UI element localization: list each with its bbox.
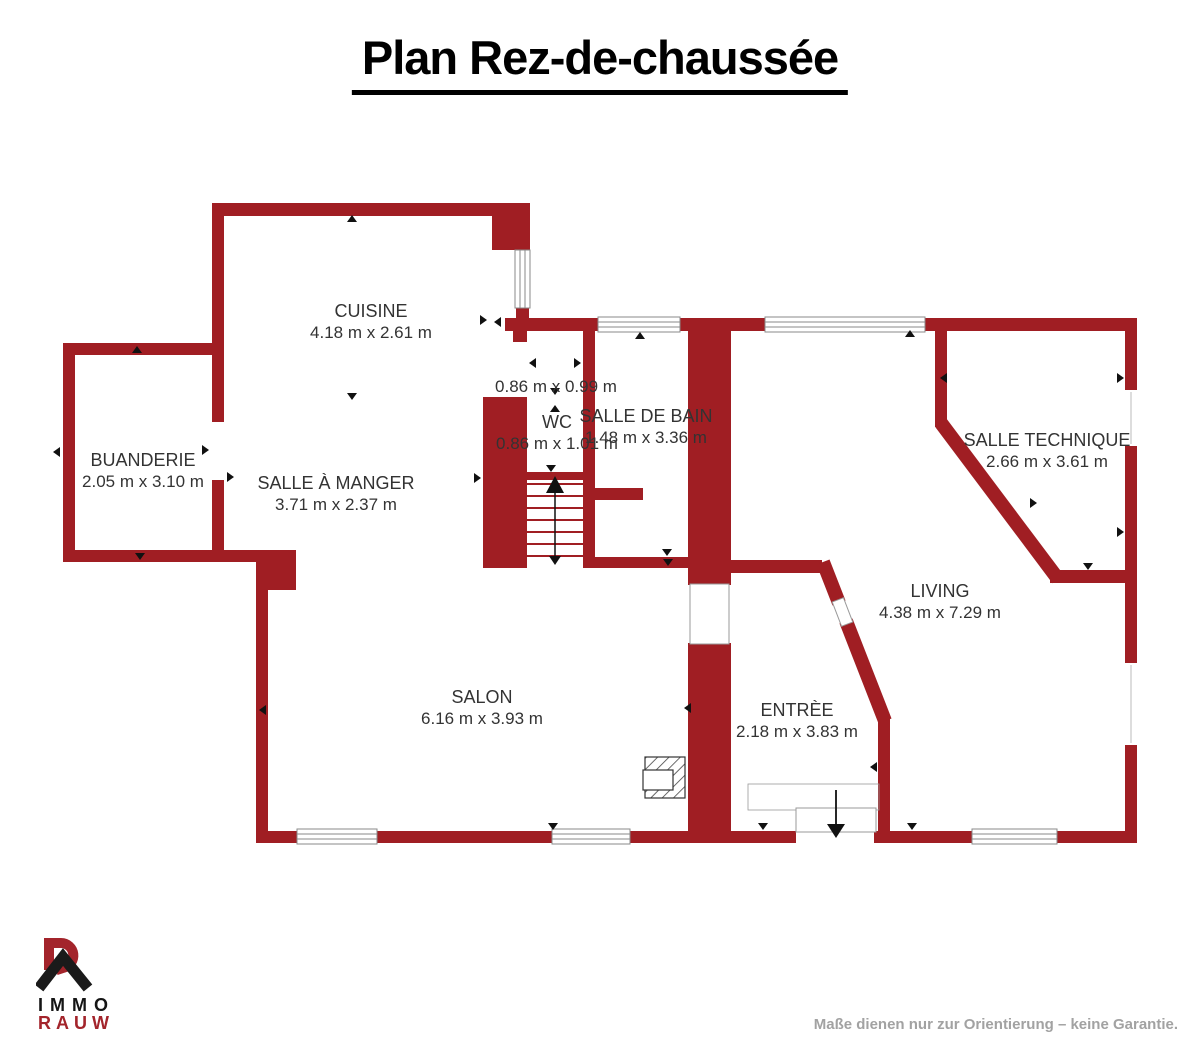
logo-mark-icon (36, 933, 96, 993)
room-label-salle-a-manger: SALLE À MANGER 3.71 m x 2.37 m (257, 472, 414, 516)
room-dims: 2.66 m x 3.61 m (964, 451, 1131, 473)
room-dims: 3.71 m x 2.37 m (257, 494, 414, 516)
room-name: SALLE À MANGER (257, 472, 414, 494)
room-name: CUISINE (310, 300, 432, 322)
room-name: LIVING (879, 580, 1001, 602)
room-name: SALON (421, 686, 543, 708)
room-dims: 6.16 m x 3.93 m (421, 708, 543, 730)
floor-plan-svg (0, 0, 1200, 1050)
room-label-cuisine: CUISINE 4.18 m x 2.61 m (310, 300, 432, 344)
room-label-salle-technique: SALLE TECHNIQUE 2.66 m x 3.61 m (964, 429, 1131, 473)
immo-rauw-logo: IMMO RAUW (36, 933, 176, 998)
stairs (527, 476, 583, 565)
room-label-salle-de-bain: SALLE DE BAIN 1.48 m x 3.36 m (579, 405, 712, 449)
room-name: SALLE DE BAIN (579, 405, 712, 427)
room-label-vestibule: 0.86 m x 0.99 m (495, 376, 617, 398)
room-label-entree: ENTRÈE 2.18 m x 3.83 m (736, 699, 858, 743)
room-label-salon: SALON 6.16 m x 3.93 m (421, 686, 543, 730)
room-dims: 0.86 m x 0.99 m (495, 376, 617, 398)
disclaimer-text: Maße dienen nur zur Orientierung – keine… (814, 1016, 1178, 1033)
logo-text-rauw: RAUW (38, 1013, 114, 1034)
room-label-living: LIVING 4.38 m x 7.29 m (879, 580, 1001, 624)
room-name: SALLE TECHNIQUE (964, 429, 1131, 451)
room-dims: 4.18 m x 2.61 m (310, 322, 432, 344)
room-dims: 1.48 m x 3.36 m (579, 427, 712, 449)
chimney (643, 757, 685, 798)
floorplan-page: Plan Rez-de-chaussée (0, 0, 1200, 1050)
room-label-buanderie: BUANDERIE 2.05 m x 3.10 m (82, 449, 204, 493)
room-name: BUANDERIE (82, 449, 204, 471)
room-dims: 2.18 m x 3.83 m (736, 721, 858, 743)
room-dims: 4.38 m x 7.29 m (879, 602, 1001, 624)
room-dims: 2.05 m x 3.10 m (82, 471, 204, 493)
room-name: ENTRÈE (736, 699, 858, 721)
walls (63, 203, 1137, 843)
